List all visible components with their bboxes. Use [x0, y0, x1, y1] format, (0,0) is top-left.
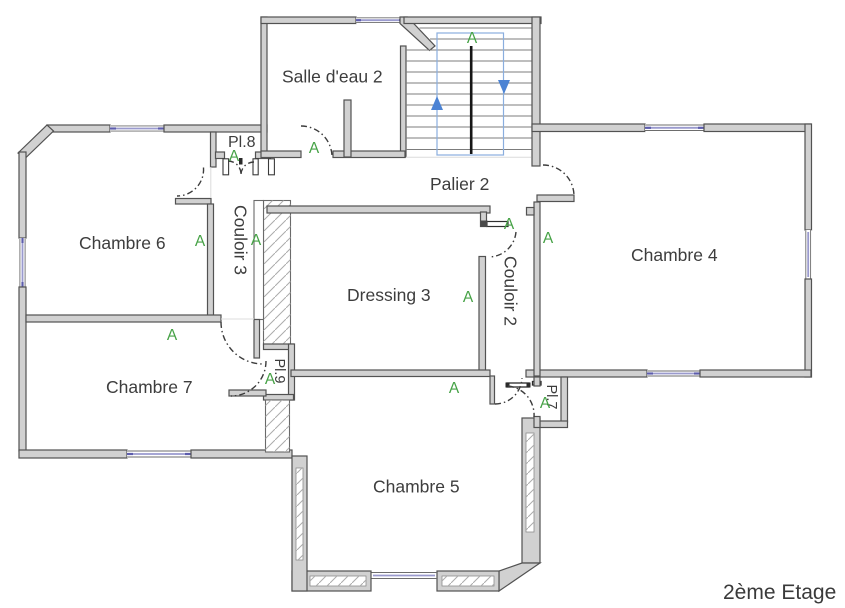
svg-text:A: A [467, 30, 478, 47]
svg-text:A: A [195, 233, 206, 250]
svg-text:A: A [251, 232, 262, 249]
svg-text:Chambre 5: Chambre 5 [373, 477, 460, 497]
svg-text:A: A [449, 380, 460, 397]
svg-text:A: A [265, 371, 276, 388]
svg-text:A: A [540, 395, 551, 412]
svg-text:A: A [543, 230, 554, 247]
svg-text:A: A [504, 216, 515, 233]
svg-text:Chambre 7: Chambre 7 [106, 377, 193, 397]
svg-text:Palier 2: Palier 2 [430, 174, 489, 194]
svg-text:Chambre 6: Chambre 6 [79, 233, 166, 253]
svg-text:2ème Etage: 2ème Etage [723, 581, 836, 604]
svg-text:A: A [167, 327, 178, 344]
svg-text:A: A [229, 148, 240, 165]
svg-text:A: A [463, 289, 474, 306]
svg-text:A: A [309, 140, 320, 157]
svg-text:Couloir 3: Couloir 3 [230, 205, 250, 275]
svg-text:Couloir 2: Couloir 2 [500, 256, 520, 326]
svg-text:Chambre 4: Chambre 4 [631, 245, 718, 265]
svg-text:Dressing 3: Dressing 3 [347, 285, 431, 305]
svg-text:Salle d'eau 2: Salle d'eau 2 [282, 67, 383, 87]
